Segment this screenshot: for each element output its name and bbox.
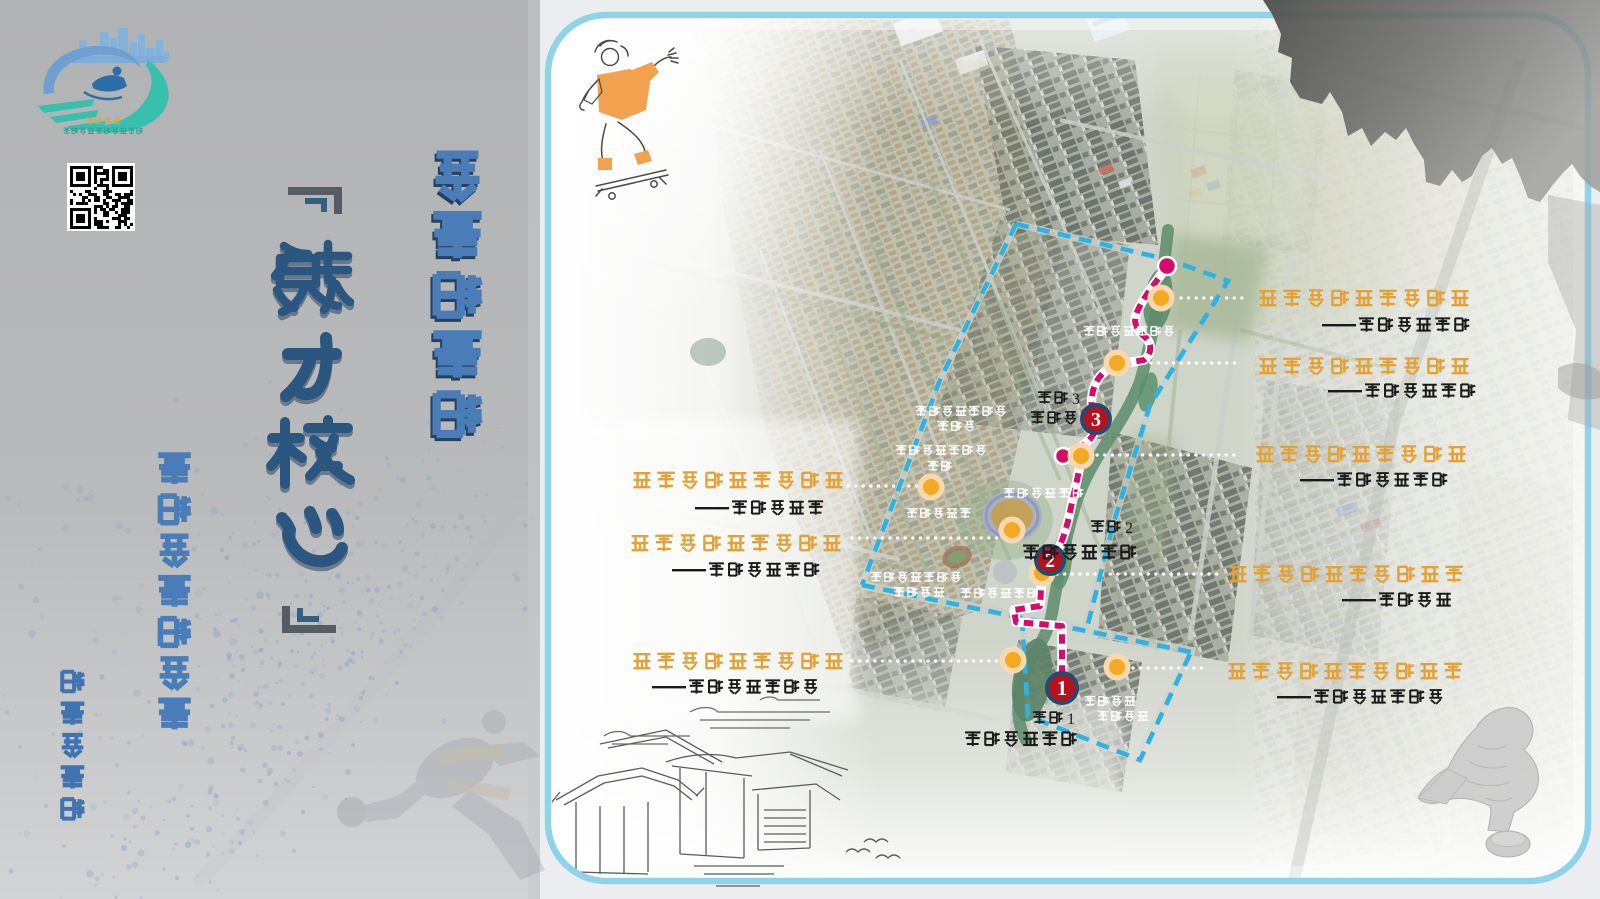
svg-text:3: 3 (1072, 391, 1080, 408)
svg-text:1: 1 (1057, 676, 1068, 700)
svg-text:3: 3 (1091, 409, 1101, 431)
svg-text:2: 2 (1125, 520, 1133, 537)
svg-text:1: 1 (1067, 711, 1075, 728)
